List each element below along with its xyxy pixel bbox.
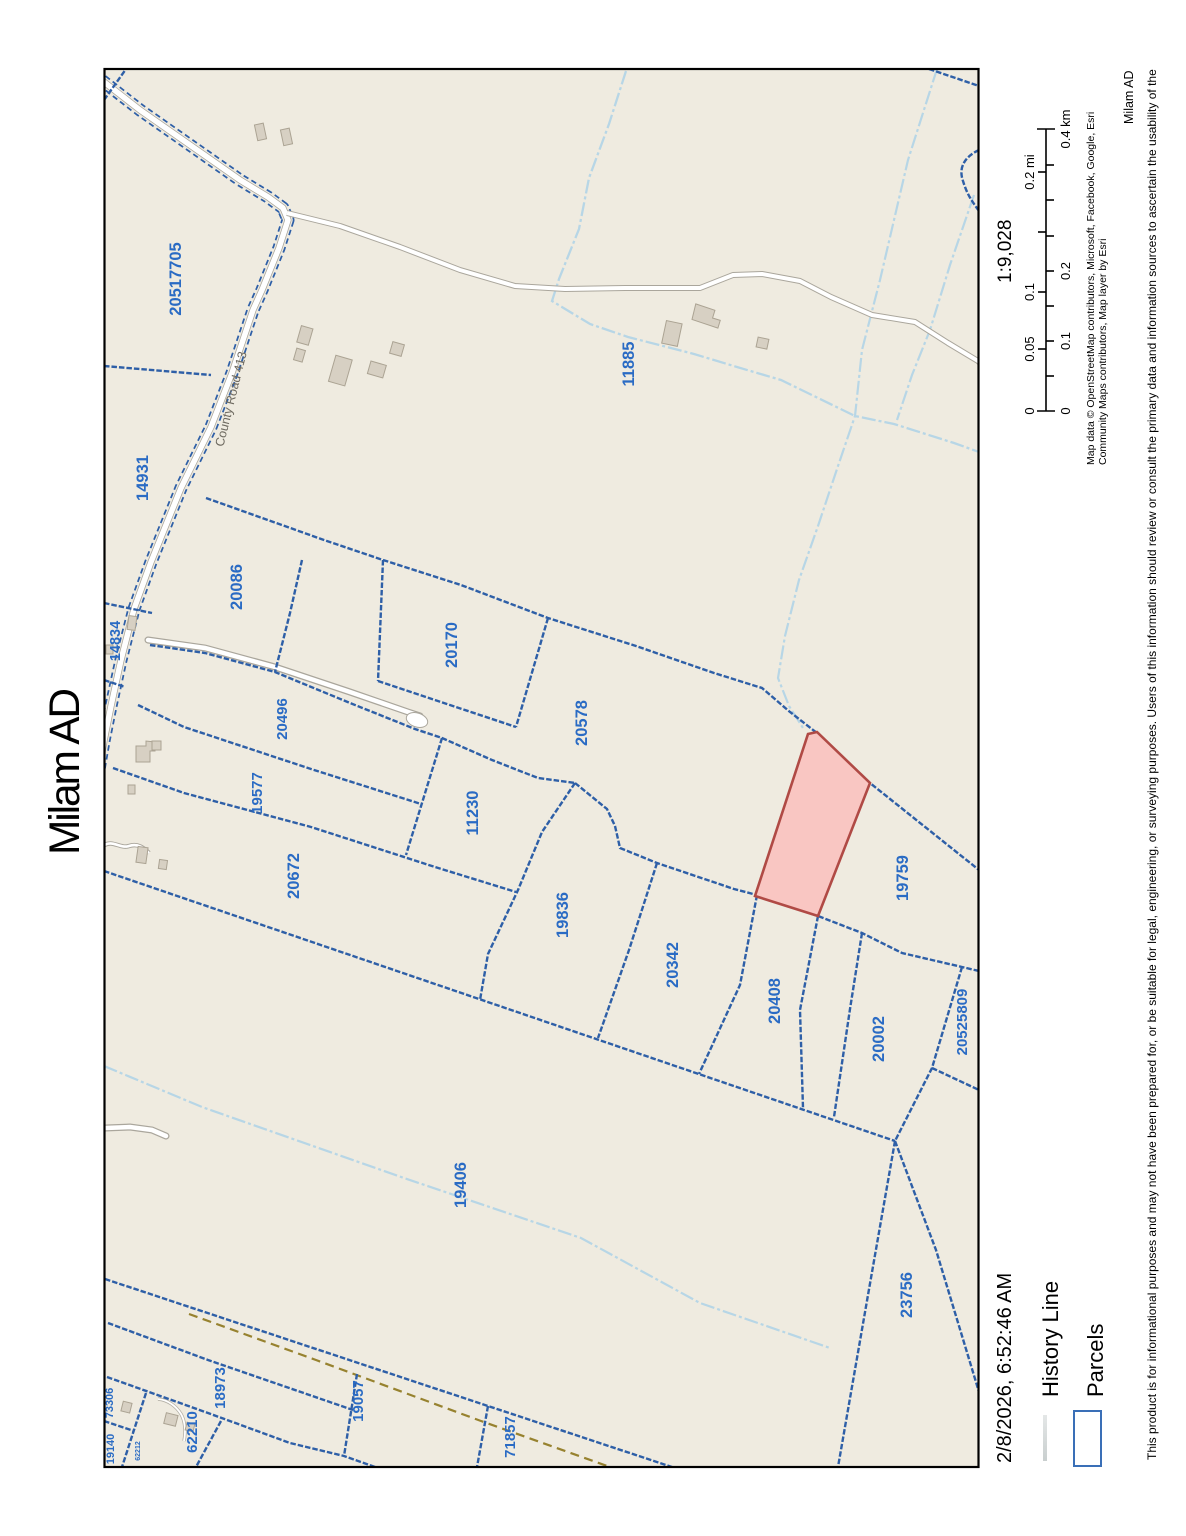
svg-text:0: 0 xyxy=(1058,407,1073,414)
svg-text:0.2 mi: 0.2 mi xyxy=(1022,154,1037,190)
svg-text:0.4 km: 0.4 km xyxy=(1058,109,1073,148)
svg-text:0.1: 0.1 xyxy=(1022,283,1037,301)
svg-text:0.1: 0.1 xyxy=(1058,332,1073,350)
svg-text:0: 0 xyxy=(1022,407,1037,414)
svg-text:0.05: 0.05 xyxy=(1022,336,1037,361)
svg-text:0.2: 0.2 xyxy=(1058,262,1073,280)
